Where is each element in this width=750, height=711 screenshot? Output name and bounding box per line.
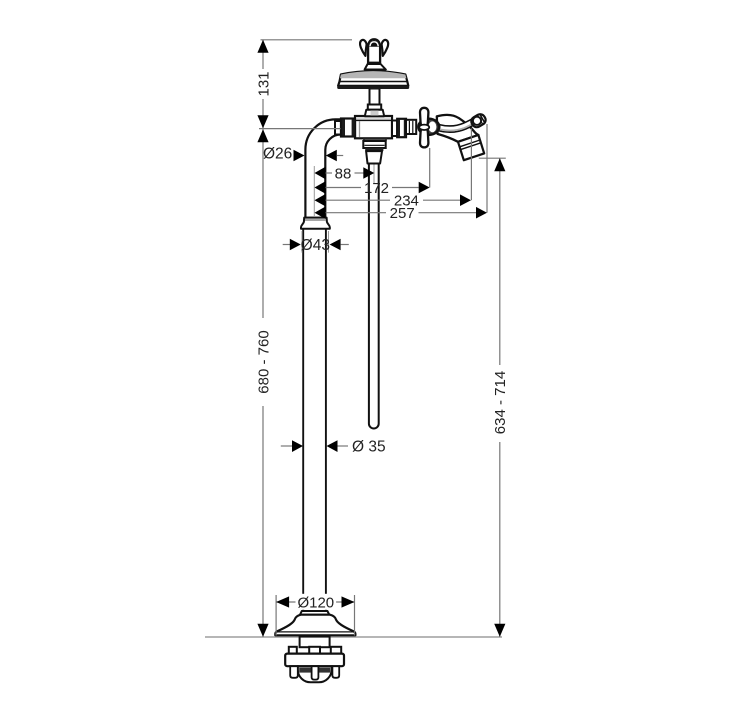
svg-text:131: 131 (255, 71, 272, 96)
svg-text:172: 172 (364, 180, 389, 197)
svg-text:257: 257 (390, 205, 415, 222)
svg-text:680 - 760: 680 - 760 (255, 330, 272, 393)
svg-text:88: 88 (335, 165, 352, 182)
svg-text:Ø120: Ø120 (297, 594, 334, 611)
svg-text:Ø 35: Ø 35 (352, 438, 386, 455)
svg-text:634 - 714: 634 - 714 (492, 371, 509, 434)
svg-text:Ø26: Ø26 (263, 146, 292, 163)
svg-text:Ø43: Ø43 (301, 237, 330, 254)
